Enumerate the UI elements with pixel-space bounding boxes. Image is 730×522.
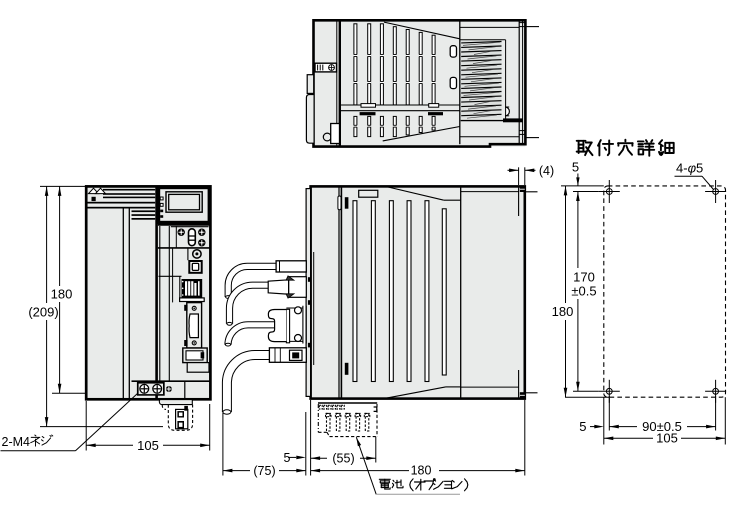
svg-text:(55): (55) xyxy=(332,452,354,466)
svg-text:2-M4: 2-M4 xyxy=(2,435,31,449)
svg-text:(75): (75) xyxy=(253,464,275,478)
svg-text:5: 5 xyxy=(572,160,579,175)
svg-text:5: 5 xyxy=(284,451,291,465)
svg-text:5: 5 xyxy=(579,419,586,434)
svg-text:180: 180 xyxy=(411,464,432,478)
svg-text:105: 105 xyxy=(656,431,678,446)
svg-text:180: 180 xyxy=(552,304,574,319)
svg-text:170: 170 xyxy=(573,270,595,285)
svg-text:±0.5: ±0.5 xyxy=(571,284,596,299)
svg-text:(209): (209) xyxy=(28,305,58,320)
svg-text:105: 105 xyxy=(137,438,159,453)
svg-text:180: 180 xyxy=(51,287,73,302)
svg-text:4-φ5: 4-φ5 xyxy=(676,161,703,176)
svg-text:(4): (4) xyxy=(539,164,554,178)
